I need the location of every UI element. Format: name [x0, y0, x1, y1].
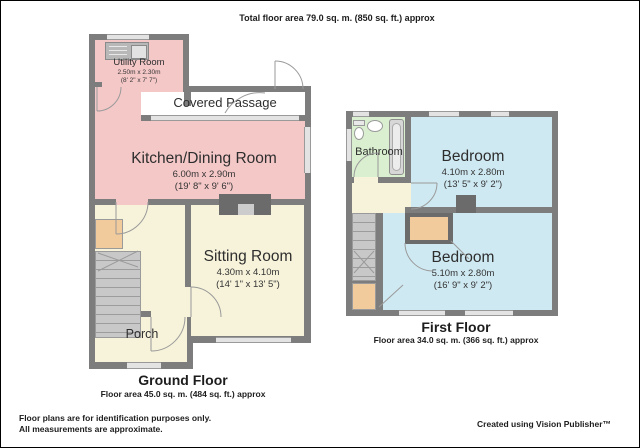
window-bathroom-west	[346, 129, 352, 161]
floorplan-image: Total floor area 79.0 sq. m. (850 sq. ft…	[0, 0, 640, 448]
credit-text: Created using Vision Publisher™	[477, 419, 611, 429]
bedroom-chimney	[456, 195, 476, 213]
bedroom1-dims-m: 4.10m x 2.80m	[442, 167, 505, 178]
understairs-cupboard	[352, 283, 376, 310]
first-floor-stairs	[352, 213, 376, 281]
bedroom1-door-opening	[405, 183, 411, 207]
bedroom2-label: Bedroom	[432, 249, 495, 267]
first-floor-title: First Floor	[421, 319, 490, 335]
toilet-icon	[354, 127, 364, 140]
window-bathroom-top	[353, 111, 369, 117]
disclaimer-line1: Floor plans are for identification purpo…	[19, 413, 211, 423]
bedroom1-dims-ft: (13' 5" x 9' 2")	[444, 179, 502, 190]
window-bedroom1-top	[429, 111, 459, 117]
window-bedroom2-south2	[465, 310, 513, 316]
window-bedroom2-south	[399, 310, 445, 316]
disclaimer-line2: All measurements are approximate.	[19, 424, 163, 434]
bedroom2-cupboard	[410, 217, 448, 240]
bedroom2-dims-m: 5.10m x 2.80m	[432, 268, 495, 279]
bathroom-door-opening	[354, 177, 378, 183]
bedroom2-dims-ft: (16' 9" x 9' 2")	[434, 280, 492, 291]
basin-icon	[367, 120, 383, 132]
bedroom2-door-opening	[383, 207, 405, 213]
toilet-cistern-icon	[353, 120, 365, 126]
first-floor-plan: Bathroom Bedroom 4.10m x 2.80m (13' 5" x…	[1, 1, 640, 448]
bedroom1-label: Bedroom	[442, 148, 505, 166]
bathroom-label: Bathroom	[355, 146, 403, 158]
first-floor-area-text: Floor area 34.0 sq. m. (366 sq. ft.) app…	[374, 335, 539, 345]
window-bedroom1-top2	[491, 111, 509, 117]
